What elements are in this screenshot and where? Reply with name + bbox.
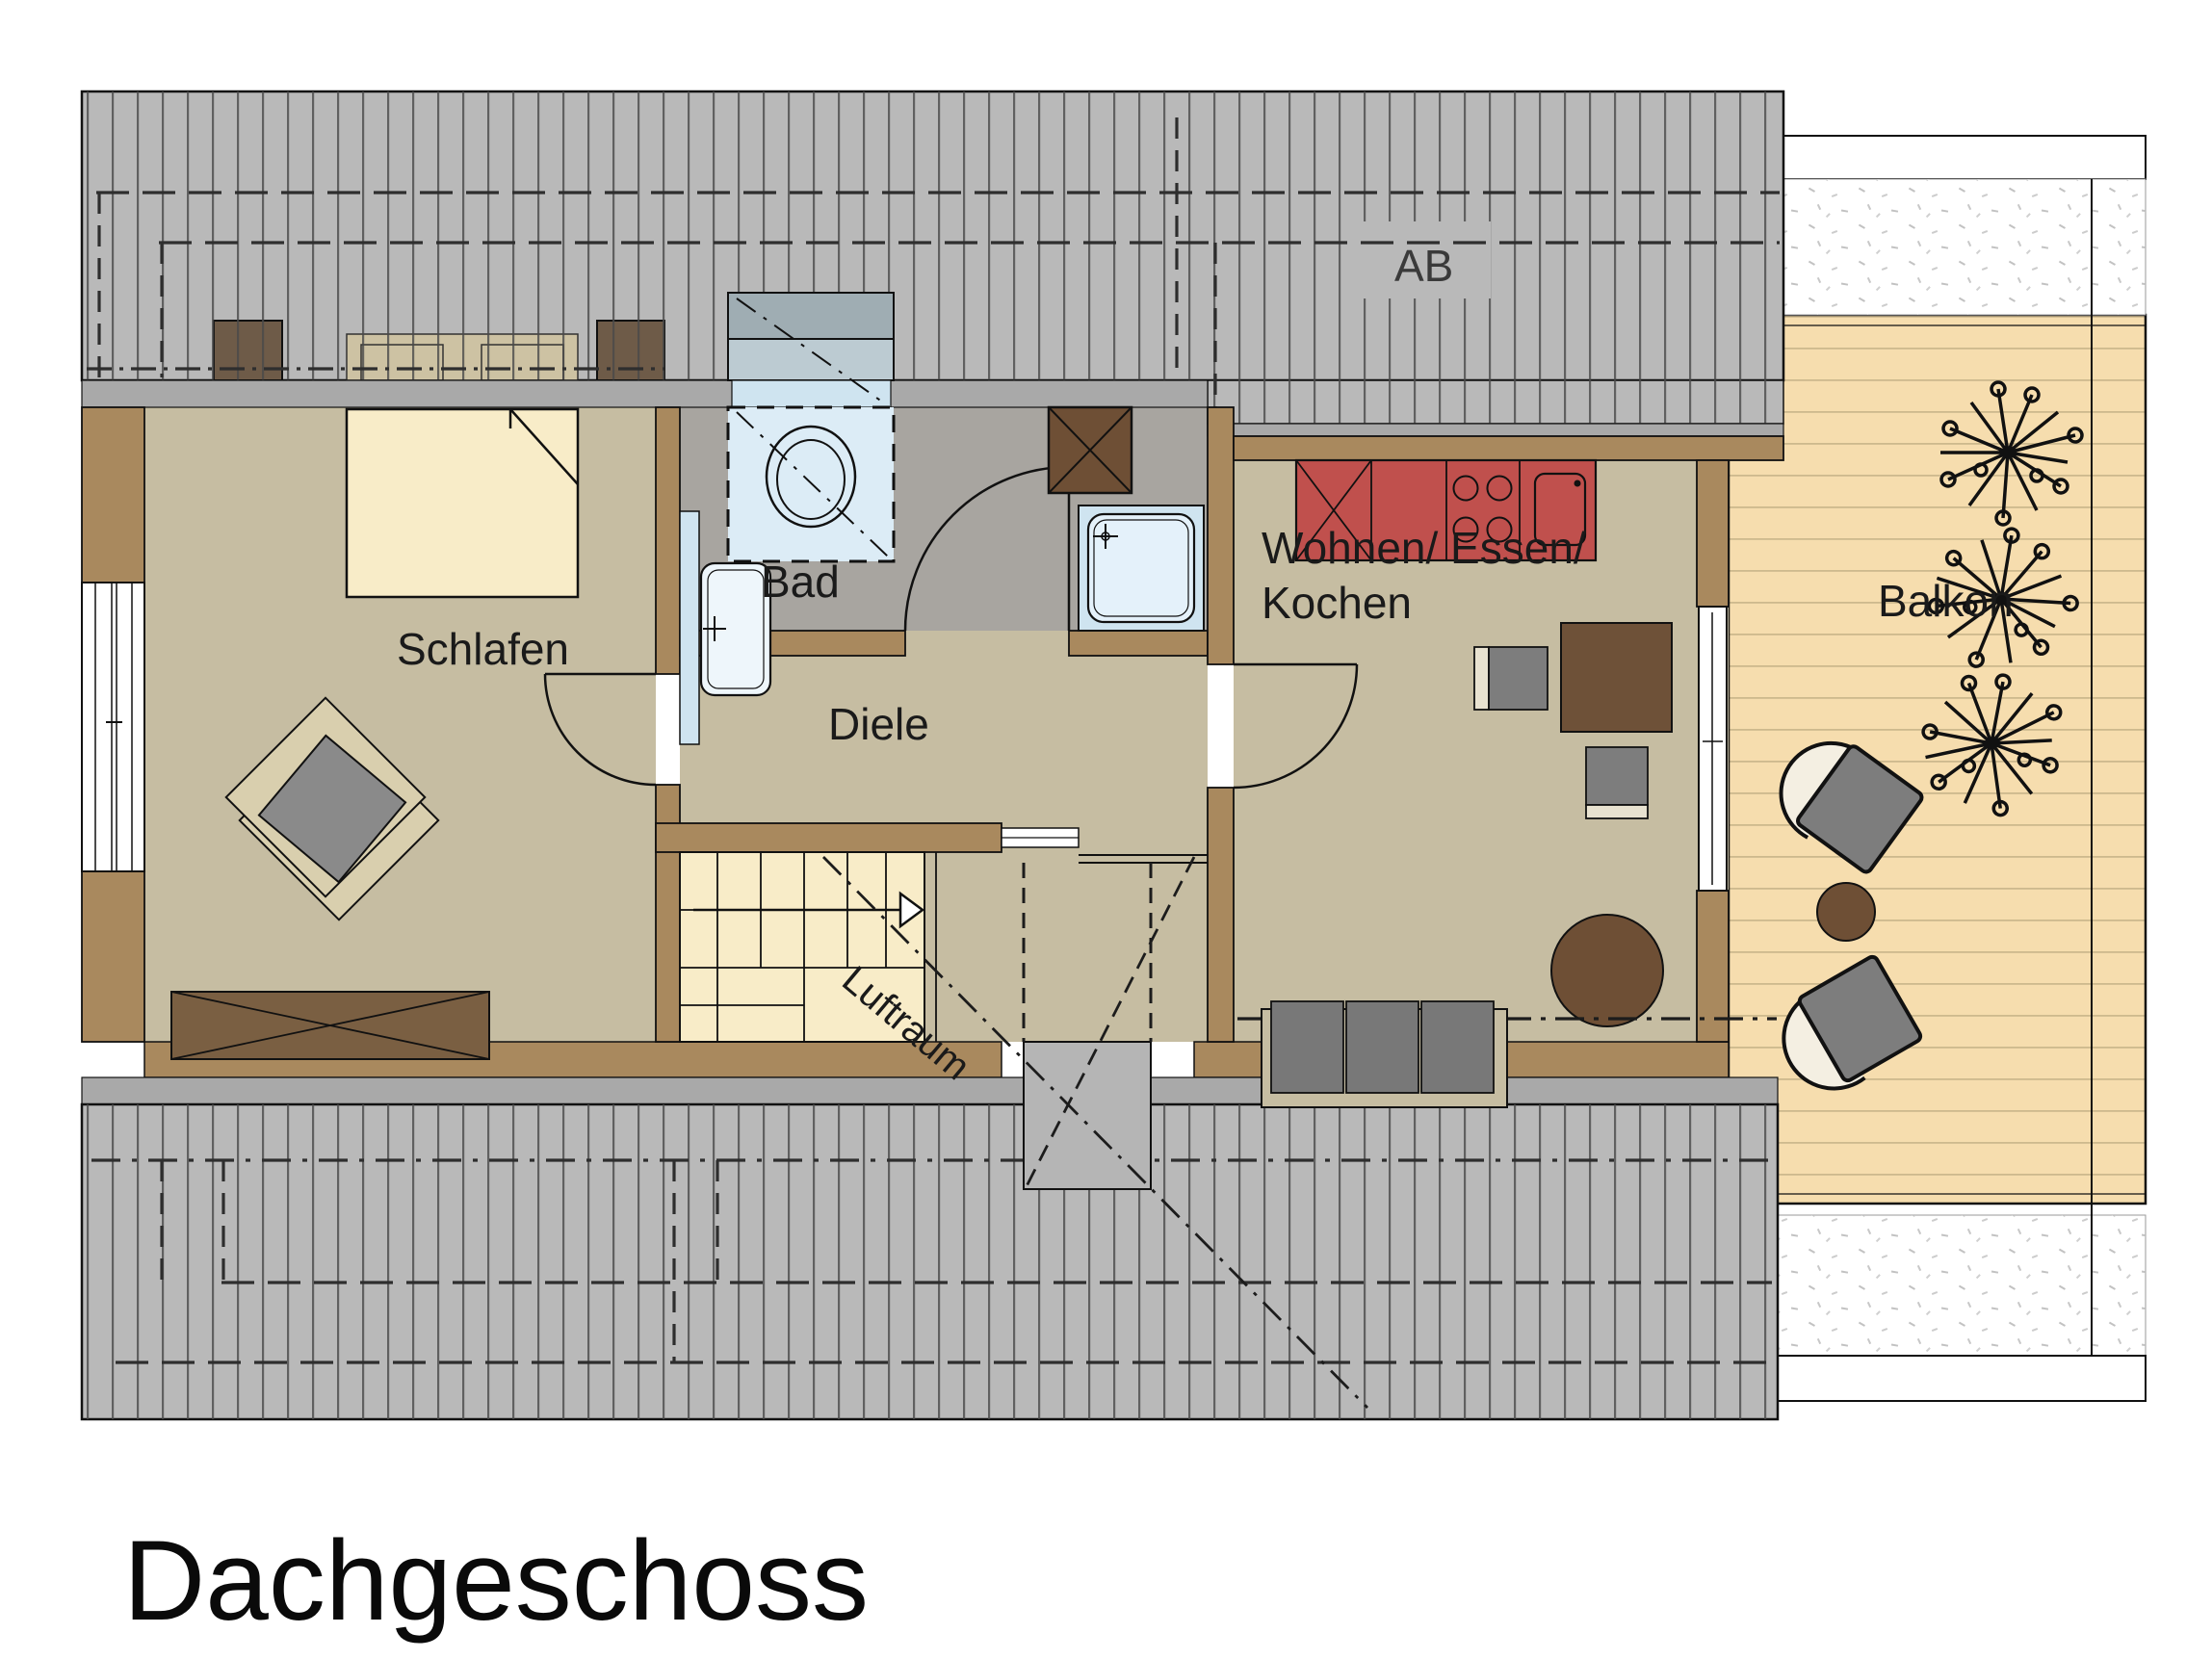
wohnen-wall	[1208, 407, 1234, 664]
balcony-parapet-bottom	[1778, 1356, 2146, 1401]
roof-band-bottom	[82, 1042, 1778, 1419]
stairwell-opening	[1024, 1042, 1151, 1189]
dining-chair	[1474, 647, 1548, 710]
sofa	[1262, 1001, 1507, 1107]
dining-chair	[1586, 747, 1648, 818]
bed	[347, 409, 578, 597]
balkon-room	[1729, 136, 2146, 1401]
shower	[1079, 505, 1204, 631]
skylight-bath	[728, 293, 894, 407]
stair-wall	[656, 823, 1002, 852]
roof-band-top: AB	[82, 91, 1783, 436]
wall-plate-bottom	[82, 1077, 1778, 1104]
balcony-deck	[1729, 315, 2146, 1204]
exterior-wall-right	[1697, 460, 1729, 607]
floor-plan-drawing: AB	[0, 0, 2212, 1659]
dresser	[171, 992, 489, 1059]
round-table	[1551, 915, 1663, 1026]
stair-threshold	[1002, 828, 1079, 847]
kitchen-top-wall	[1234, 436, 1783, 460]
diele-label: Diele	[828, 699, 929, 749]
roof-section-label: AB	[1394, 241, 1453, 291]
wall-plate-top	[82, 380, 1208, 407]
page-title: Dachgeschoss	[123, 1517, 869, 1645]
floor-plan-page: AB	[0, 0, 2212, 1659]
schlafen-label: Schlafen	[397, 624, 569, 674]
balcony-table	[1817, 883, 1875, 941]
wohnen-label-line1: Wohnen/ Essen/	[1262, 523, 1586, 573]
wohnen-label-line2: Kochen	[1262, 578, 1412, 628]
window-left	[82, 583, 144, 871]
toilet	[728, 407, 894, 561]
balcony-parapet-top	[1778, 136, 2146, 179]
bad-label: Bad	[761, 557, 840, 607]
balcony-door	[1699, 607, 1727, 891]
schlafen-wall	[656, 407, 680, 674]
balkon-label: Balkon	[1878, 576, 2014, 626]
dining-table	[1561, 623, 1672, 732]
chimney-shaft	[1049, 407, 1132, 493]
